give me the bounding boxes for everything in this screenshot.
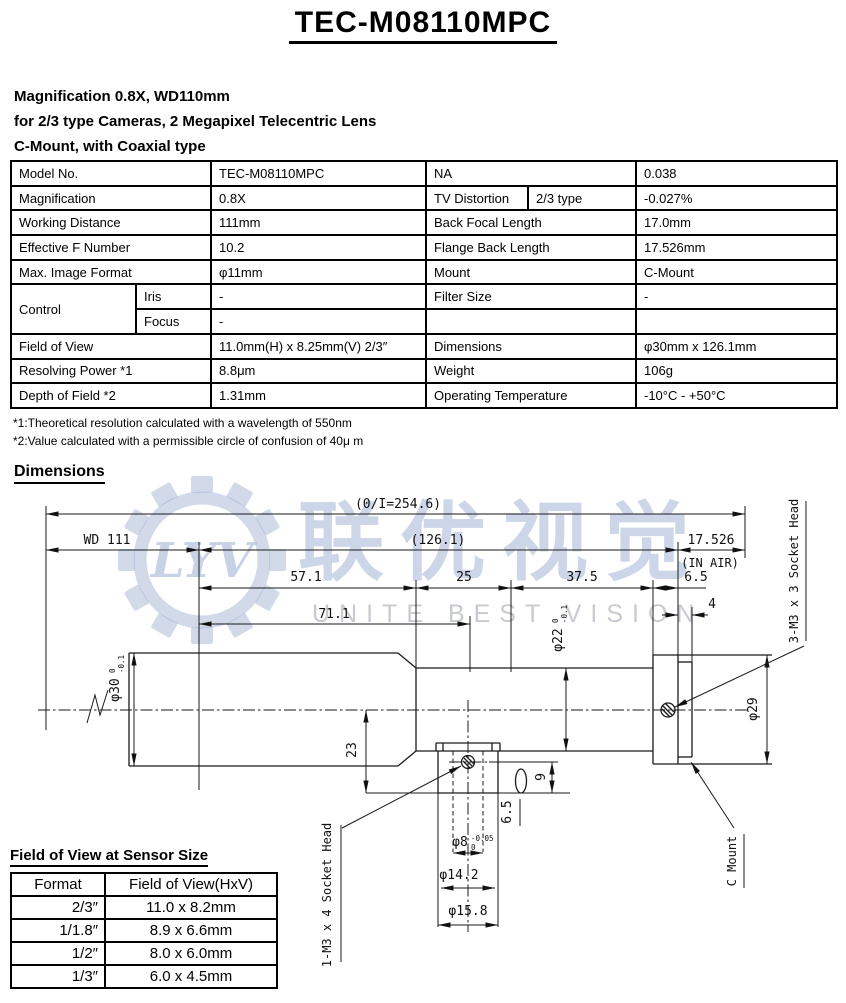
spec-row: Effective F Number 10.2 Flange Back Leng… xyxy=(11,235,837,260)
dimensions-heading: Dimensions xyxy=(14,463,105,484)
spec-cell: Field of View xyxy=(11,334,211,359)
spec-cell: Model No. xyxy=(11,161,211,186)
spec-cell: 0.038 xyxy=(636,161,837,186)
fov-col-format: Format xyxy=(11,873,105,896)
subtitle-line: C-Mount, with Coaxial type xyxy=(14,134,376,159)
dim-4: 4 xyxy=(708,597,716,612)
dim-flange-back: 17.526 xyxy=(688,533,735,548)
spec-cell: 111mm xyxy=(211,210,426,235)
spec-row: Working Distance 111mm Back Focal Length… xyxy=(11,210,837,235)
spec-cell: Control xyxy=(11,284,136,333)
spec-cell: φ30mm x 126.1mm xyxy=(636,334,837,359)
spec-row: Model No. TEC-M08110MPC NA 0.038 xyxy=(11,161,837,186)
spec-cell: Mount xyxy=(426,260,636,285)
spec-cell xyxy=(426,309,636,334)
spec-cell: 2/3 type xyxy=(528,186,636,211)
dim-dia29: φ29 xyxy=(746,697,761,720)
svg-text:φ30: φ30 xyxy=(108,678,123,701)
svg-text:0: 0 xyxy=(108,668,117,673)
spec-cell: TV Distortion xyxy=(426,186,528,211)
dim-dia30: φ30 0 -0.1 xyxy=(108,655,126,702)
fov-section: Field of View at Sensor Size Format Fiel… xyxy=(10,847,278,989)
spec-cell: NA xyxy=(426,161,636,186)
dim-dia14-2: φ14.2 xyxy=(439,868,478,883)
datasheet-page: LYV 联优视觉 UNITE BEST VISION TEC-M08110MPC… xyxy=(0,0,846,1003)
spec-cell: 11.0mm(H) x 8.25mm(V) 2/3″ xyxy=(211,334,426,359)
spec-cell: Weight xyxy=(426,359,636,384)
spec-cell: Flange Back Length xyxy=(426,235,636,260)
fov-heading: Field of View at Sensor Size xyxy=(10,847,208,867)
dim-37-5: 37.5 xyxy=(566,570,597,585)
fov-format: 1/3″ xyxy=(11,965,105,988)
c-mount-leader xyxy=(691,762,734,828)
svg-text:φ8: φ8 xyxy=(452,835,468,850)
dim-body-length: (126.1) xyxy=(411,533,466,548)
dim-dia8: φ8 -0.05 0 xyxy=(452,834,493,852)
spec-cell: Max. Image Format xyxy=(11,260,211,285)
fov-row: 1/3″ 6.0 x 4.5mm xyxy=(11,965,277,988)
footnote-2: *2:Value calculated with a permissible c… xyxy=(13,432,363,450)
fov-row: 1/2″ 8.0 x 6.0mm xyxy=(11,942,277,965)
dim-6-5-port: 6.5 xyxy=(500,800,515,823)
fov-value: 6.0 x 4.5mm xyxy=(105,965,277,988)
spec-cell: Operating Temperature xyxy=(426,383,636,408)
spec-cell: Filter Size xyxy=(426,284,636,309)
fov-row: 1/1.8″ 8.9 x 6.6mm xyxy=(11,919,277,942)
fov-value: 8.0 x 6.0mm xyxy=(105,942,277,965)
spec-cell: Dimensions xyxy=(426,334,636,359)
fov-format: 2/3″ xyxy=(11,896,105,919)
label-flange-screw: 3-M3 x 3 Socket Head xyxy=(787,499,801,644)
svg-text:-0.05: -0.05 xyxy=(471,834,494,843)
subtitle-line: for 2/3 type Cameras, 2 Megapixel Telece… xyxy=(14,109,376,134)
subtitle-line: Magnification 0.8X, WD110mm xyxy=(14,84,376,109)
spec-row: Resolving Power *1 8.8μm Weight 106g xyxy=(11,359,837,384)
port-screw-leader xyxy=(342,766,461,828)
dim-71-1: 71.1 xyxy=(318,607,349,622)
footnote-1: *1:Theoretical resolution calculated wit… xyxy=(13,414,363,432)
spec-cell: φ11mm xyxy=(211,260,426,285)
spec-cell: Magnification xyxy=(11,186,211,211)
dim-23: 23 xyxy=(345,742,360,758)
spec-cell: 10.2 xyxy=(211,235,426,260)
spec-cell: -0.027% xyxy=(636,186,837,211)
svg-text:0: 0 xyxy=(471,843,476,852)
fov-format: 1/1.8″ xyxy=(11,919,105,942)
dim-in-air: (IN AIR) xyxy=(681,556,739,570)
spec-row: Depth of Field *2 1.31mm Operating Tempe… xyxy=(11,383,837,408)
spec-cell: Back Focal Length xyxy=(426,210,636,235)
drill-end-ellipse xyxy=(516,769,527,793)
spec-row: Magnification 0.8X TV Distortion 2/3 typ… xyxy=(11,186,837,211)
spec-cell: TEC-M08110MPC xyxy=(211,161,426,186)
dim-25: 25 xyxy=(456,570,472,585)
fov-col-fov: Field of View(HxV) xyxy=(105,873,277,896)
page-title: TEC-M08110MPC xyxy=(289,6,557,44)
title-block: TEC-M08110MPC xyxy=(0,6,846,44)
dim-6-5: 6.5 xyxy=(684,570,707,585)
dim-9: 9 xyxy=(534,773,549,781)
spec-cell: C-Mount xyxy=(636,260,837,285)
spec-table: Model No. TEC-M08110MPC NA 0.038 Magnifi… xyxy=(10,160,838,409)
fov-value: 8.9 x 6.6mm xyxy=(105,919,277,942)
subtitle-block: Magnification 0.8X, WD110mm for 2/3 type… xyxy=(14,84,376,159)
footnotes: *1:Theoretical resolution calculated wit… xyxy=(13,414,363,450)
spec-cell: Iris xyxy=(136,284,211,309)
spec-cell: Focus xyxy=(136,309,211,334)
spec-cell: 106g xyxy=(636,359,837,384)
spec-cell: 0.8X xyxy=(211,186,426,211)
svg-text:-0.1: -0.1 xyxy=(117,655,126,673)
fov-format: 1/2″ xyxy=(11,942,105,965)
spec-cell: - xyxy=(211,309,426,334)
svg-text:φ22: φ22 xyxy=(551,628,566,651)
dim-dia22: φ22 0 -0.1 xyxy=(551,605,569,652)
label-c-mount: C Mount xyxy=(725,836,739,887)
dim-overall-length: (0/I=254.6) xyxy=(355,497,441,512)
spec-cell: Effective F Number xyxy=(11,235,211,260)
break-symbol xyxy=(87,690,108,723)
spec-row: Field of View 11.0mm(H) x 8.25mm(V) 2/3″… xyxy=(11,334,837,359)
spec-cell: Depth of Field *2 xyxy=(11,383,211,408)
spec-cell: - xyxy=(636,284,837,309)
spec-cell: Working Distance xyxy=(11,210,211,235)
spec-row: Control Iris - Filter Size - xyxy=(11,284,837,309)
spec-cell: Resolving Power *1 xyxy=(11,359,211,384)
fov-header-row: Format Field of View(HxV) xyxy=(11,873,277,896)
spec-cell: 1.31mm xyxy=(211,383,426,408)
spec-row: Max. Image Format φ11mm Mount C-Mount xyxy=(11,260,837,285)
dim-dia15-8: φ15.8 xyxy=(448,904,487,919)
spec-cell: -10°C - +50°C xyxy=(636,383,837,408)
spec-cell xyxy=(636,309,837,334)
svg-text:-0.1: -0.1 xyxy=(560,605,569,623)
fov-table: Format Field of View(HxV) 2/3″ 11.0 x 8.… xyxy=(10,872,278,989)
dim-57-1: 57.1 xyxy=(290,570,321,585)
svg-text:0: 0 xyxy=(551,618,560,623)
fov-value: 11.0 x 8.2mm xyxy=(105,896,277,919)
spec-cell: 8.8μm xyxy=(211,359,426,384)
spec-cell: - xyxy=(211,284,426,309)
label-port-screw: 1-M3 x 4 Socket Head xyxy=(320,823,334,968)
dim-working-distance: WD 111 xyxy=(84,533,131,548)
spec-cell: 17.526mm xyxy=(636,235,837,260)
fov-row: 2/3″ 11.0 x 8.2mm xyxy=(11,896,277,919)
spec-cell: 17.0mm xyxy=(636,210,837,235)
